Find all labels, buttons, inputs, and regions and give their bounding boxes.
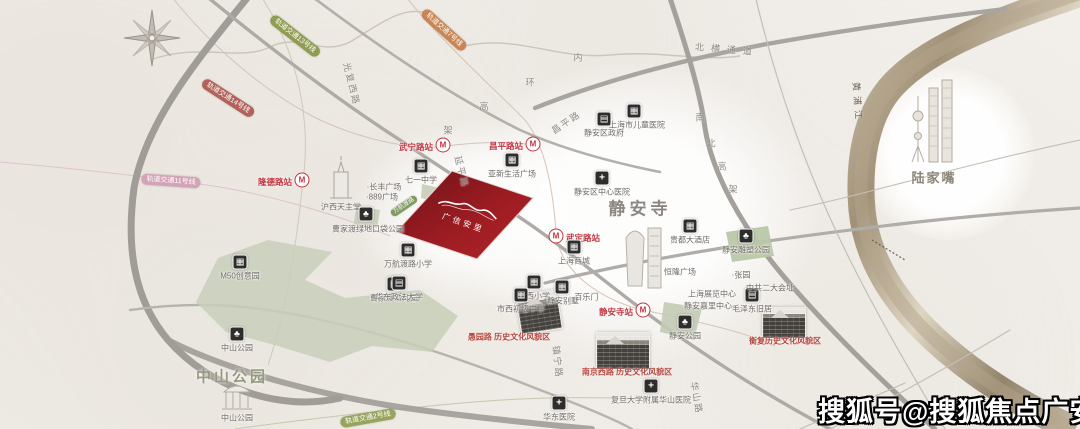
- compass-icon: [124, 10, 180, 66]
- poi-label: 曹家渡绿地口袋公园: [332, 224, 404, 235]
- poi-label: 华东医院: [543, 412, 575, 423]
- metro-icon: M: [295, 173, 310, 188]
- road-label: 环: [525, 76, 534, 89]
- map-graphics: [0, 0, 1080, 429]
- poi-label: 复旦大学附属华山医院: [611, 395, 691, 406]
- place-label: 静安寺: [609, 195, 672, 220]
- poi-label: 静安嘉里中心: [684, 301, 732, 312]
- historic-area-label: 南京西路 历史文化风貌区: [582, 367, 672, 378]
- watermark: 搜狐号@搜狐焦点广安站: [818, 390, 1080, 429]
- church-sketch: [330, 156, 352, 198]
- hospital-icon: +: [644, 379, 659, 394]
- tree-icon: ♣: [359, 207, 374, 222]
- poi-label: 静安公园: [669, 331, 701, 342]
- metro-station-label: 武宁路站: [399, 141, 433, 153]
- metro-icon: M: [636, 303, 651, 318]
- hospital-icon: +: [595, 171, 610, 186]
- road-label: 高: [479, 100, 488, 113]
- poi-label: 中共二大会址: [746, 283, 794, 294]
- poi-label: 中山公园: [221, 343, 253, 354]
- road-label: 北: [706, 137, 715, 150]
- building-icon: ▦: [527, 275, 542, 290]
- tower-sketches: [626, 228, 661, 288]
- metro-station-label: 隆德路站: [258, 176, 292, 188]
- lujiazui-skyline-sketch: [912, 80, 952, 162]
- poi-label: 万航渡路小学: [384, 259, 432, 270]
- tree-icon: ♣: [739, 229, 754, 244]
- huangpu-river: [861, 0, 1080, 429]
- poi-label: 上海市儿童医院: [609, 120, 665, 131]
- poi-label: 亚新生活广场: [488, 169, 536, 180]
- poi-label: 恒隆广场: [664, 267, 696, 278]
- poi-label: 静安雕塑公园: [722, 245, 770, 256]
- building-icon: ▦: [505, 153, 520, 168]
- poi-label: 静安区中心医院: [574, 187, 630, 198]
- gazebo-sketch: [222, 386, 252, 409]
- bank-icon: ▤: [392, 276, 407, 291]
- poi-label: 沪西天主堂: [321, 202, 361, 213]
- place-label: 陆家嘴: [911, 168, 956, 187]
- building-icon: ▦: [555, 280, 570, 295]
- metro-station-label: 静安寺站: [599, 306, 633, 318]
- hospital-icon: +: [552, 396, 567, 411]
- tree-icon: ♣: [230, 327, 245, 342]
- poi-label: 上海商城: [558, 256, 590, 267]
- poi-label: 毛泽东旧居: [732, 304, 772, 315]
- metro-icon: M: [526, 137, 541, 152]
- metro-station-label: 昌平路站: [489, 140, 523, 152]
- poi-label: ·张园: [732, 270, 751, 281]
- poi-label: M50创意园: [220, 271, 260, 282]
- poi-label: 贵都大酒店: [670, 235, 710, 246]
- building-icon: ▦: [414, 159, 429, 174]
- road-label: 南: [695, 111, 704, 124]
- location-map: 广信安里 静安寺中山公园陆家嘴轨道交通13号线轨道交通7号线轨道交通14号线轨道…: [0, 0, 1080, 429]
- historic-area-label: 衡复历史文化风貌区: [749, 336, 821, 347]
- poi-label: 市西初级中学: [497, 304, 545, 315]
- building-icon: ▦: [514, 288, 529, 303]
- poi-label: 中山公园: [221, 413, 253, 424]
- poi-label: 静安别墅: [547, 296, 579, 307]
- poi-label: 华东政法大学: [375, 292, 423, 303]
- road-label: 架: [443, 124, 452, 137]
- tree-icon: ♣: [678, 315, 693, 330]
- building-icon: ▦: [567, 240, 582, 255]
- building-icon: ▦: [627, 104, 642, 119]
- building-icon: ▦: [233, 255, 248, 270]
- historic-area-label: 愚园路 历史文化风貌区: [468, 332, 550, 343]
- building-icon: ▦: [401, 243, 416, 258]
- metro-icon: M: [549, 229, 564, 244]
- road-label: 内: [573, 51, 582, 64]
- metro-icon: M: [436, 138, 451, 153]
- poi-label: ·889广场: [366, 192, 398, 203]
- building-icon: ▦: [683, 219, 698, 234]
- poi-label: 上海展览中心: [688, 289, 736, 300]
- poi-label: 七一中学: [405, 175, 437, 186]
- road-label: 高: [717, 160, 726, 173]
- place-label: 中山公园: [196, 366, 268, 387]
- road-label: 架: [728, 183, 737, 196]
- historic-photo-nanjingxilu: [596, 332, 650, 370]
